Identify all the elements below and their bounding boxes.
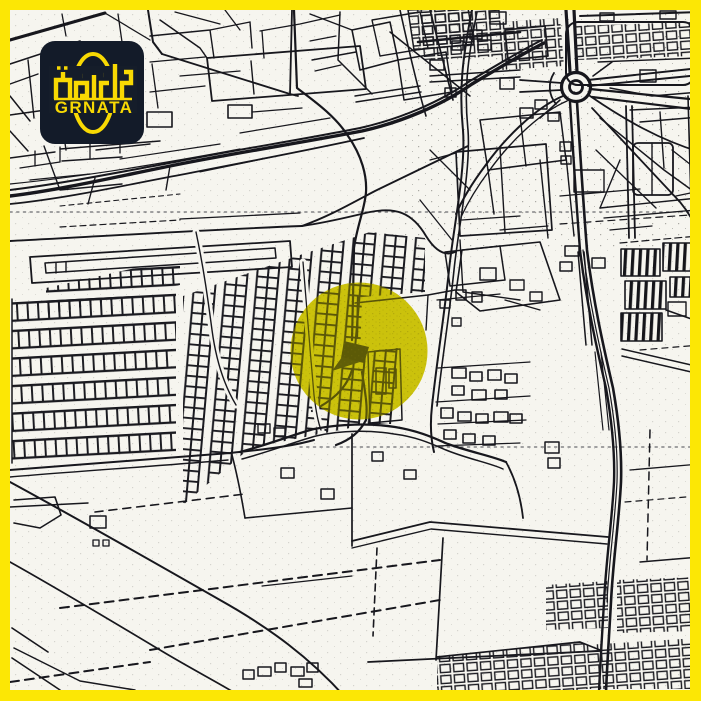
svg-text:GRNATA: GRNATA — [55, 98, 134, 117]
